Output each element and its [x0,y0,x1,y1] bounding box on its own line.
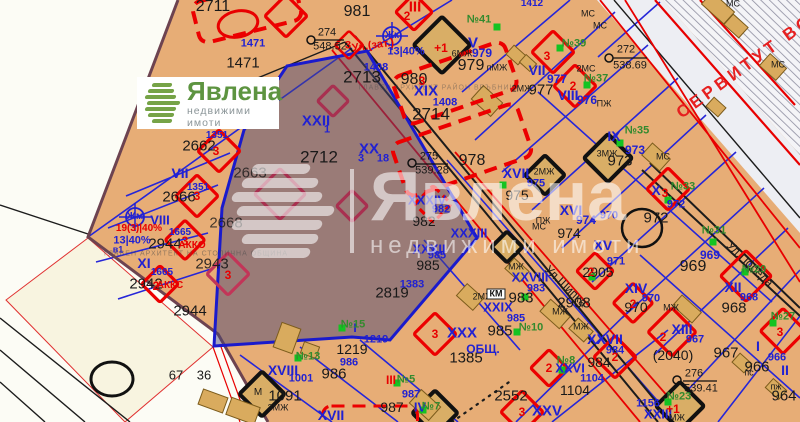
map-canvas[interactable] [0,0,800,422]
yavlena-logo: Явлена недвижими имоти [137,77,279,129]
logo-tagline: недвижими имоти [187,105,282,129]
yavlena-bars-icon [145,83,180,123]
map-viewer: 271198198027122713271414711471979пМЖ9789… [0,0,800,422]
logo-brand: Явлена [187,78,282,104]
